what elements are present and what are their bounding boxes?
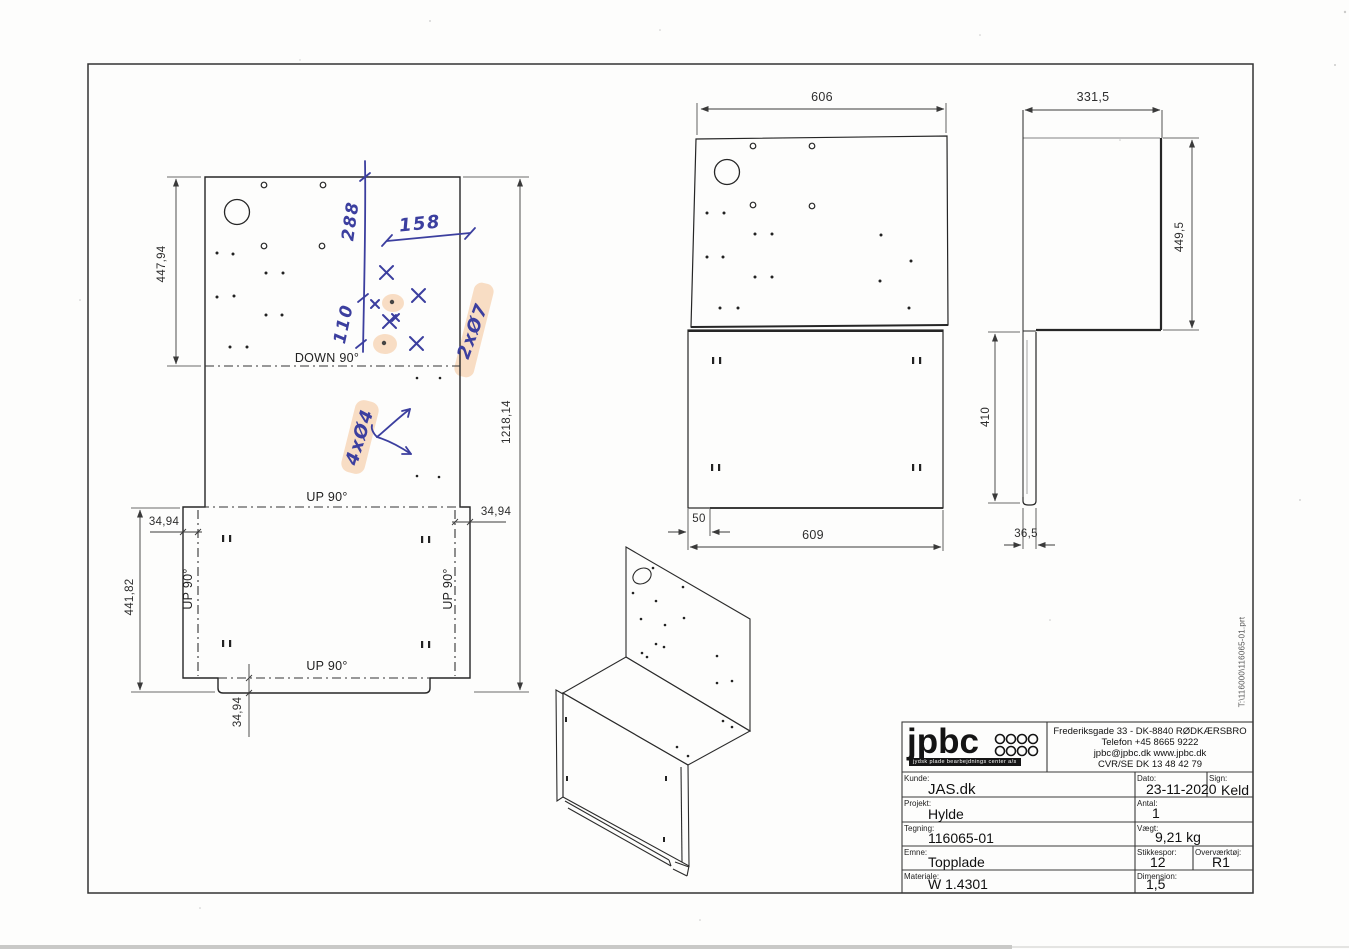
field-label-kunde: Kunde: bbox=[904, 774, 929, 783]
dim-front-step: 50 bbox=[692, 513, 705, 525]
dim-side-leg-length: 410 bbox=[980, 407, 992, 427]
field-value-emne: Topplade bbox=[928, 854, 985, 870]
fold-label-up-right: UP 90° bbox=[441, 568, 455, 609]
field-label-emne: Emne: bbox=[904, 848, 927, 857]
company-email-web: jpbc@jpbc.dk www.jpbc.dk bbox=[1094, 748, 1207, 759]
company-address: Frederiksgade 33 - DK-8840 RØDKÆRSBRO bbox=[1053, 726, 1246, 737]
dim-flat-bottom-height: 441,82 bbox=[124, 579, 136, 616]
side-view bbox=[1023, 110, 1162, 505]
drawing-frame bbox=[88, 64, 1253, 893]
fold-label-up-left: UP 90° bbox=[181, 568, 195, 609]
dim-front-width-top: 606 bbox=[811, 90, 833, 104]
dim-side-depth: 331,5 bbox=[1077, 90, 1110, 104]
fold-label-down: DOWN 90° bbox=[295, 351, 359, 365]
scanned-technical-drawing: 447,94 1218,14 441,82 34,94 34,94 34,94 … bbox=[0, 0, 1349, 949]
field-value-overvaerktoj: R1 bbox=[1212, 854, 1230, 870]
field-value-stikkespor: 12 bbox=[1150, 854, 1166, 870]
fold-label-up-bottom: UP 90° bbox=[306, 659, 347, 673]
dim-bottom-tab: 34,94 bbox=[232, 697, 244, 727]
field-value-sign: Keld bbox=[1221, 782, 1249, 798]
field-value-kunde: JAS.dk bbox=[928, 781, 976, 798]
dim-flange-right: 34,94 bbox=[481, 506, 511, 518]
dim-side-leg-width: 36,5 bbox=[1014, 528, 1038, 540]
company-phone: Telefon +45 8665 9222 bbox=[1102, 737, 1199, 748]
handwritten-dim-158: 158 bbox=[398, 211, 442, 236]
file-path-note: T:\116000\116065-01.prt bbox=[1238, 617, 1247, 708]
front-view bbox=[688, 136, 948, 508]
field-value-tegning: 116065-01 bbox=[928, 830, 994, 846]
field-value-projekt: Hylde bbox=[928, 806, 964, 822]
dim-flat-total-length: 1218,14 bbox=[501, 400, 513, 444]
isometric-view bbox=[556, 547, 750, 876]
dim-front-width-bottom: 609 bbox=[802, 528, 824, 542]
field-value-vaegt: 9,21 kg bbox=[1155, 829, 1201, 845]
scan-artifacts bbox=[0, 11, 1349, 949]
dim-flange-left: 34,94 bbox=[149, 516, 179, 528]
dim-flat-top-height: 447,94 bbox=[156, 246, 168, 283]
flat-pattern-view bbox=[183, 177, 470, 693]
field-value-dimension: 1,5 bbox=[1146, 876, 1165, 892]
field-value-antal: 1 bbox=[1152, 805, 1160, 821]
fold-label-up-top: UP 90° bbox=[306, 490, 347, 504]
company-logo-subtext: jydsk plade bearbejdnings center a/s bbox=[909, 758, 1021, 766]
field-value-materiale: W 1.4301 bbox=[928, 876, 988, 892]
company-cvr: CVR/SE DK 13 48 42 79 bbox=[1098, 759, 1202, 770]
field-value-dato: 23-11-2020 bbox=[1146, 781, 1217, 797]
company-logo: jpbc bbox=[907, 724, 979, 759]
dim-side-height: 449,5 bbox=[1174, 222, 1186, 252]
